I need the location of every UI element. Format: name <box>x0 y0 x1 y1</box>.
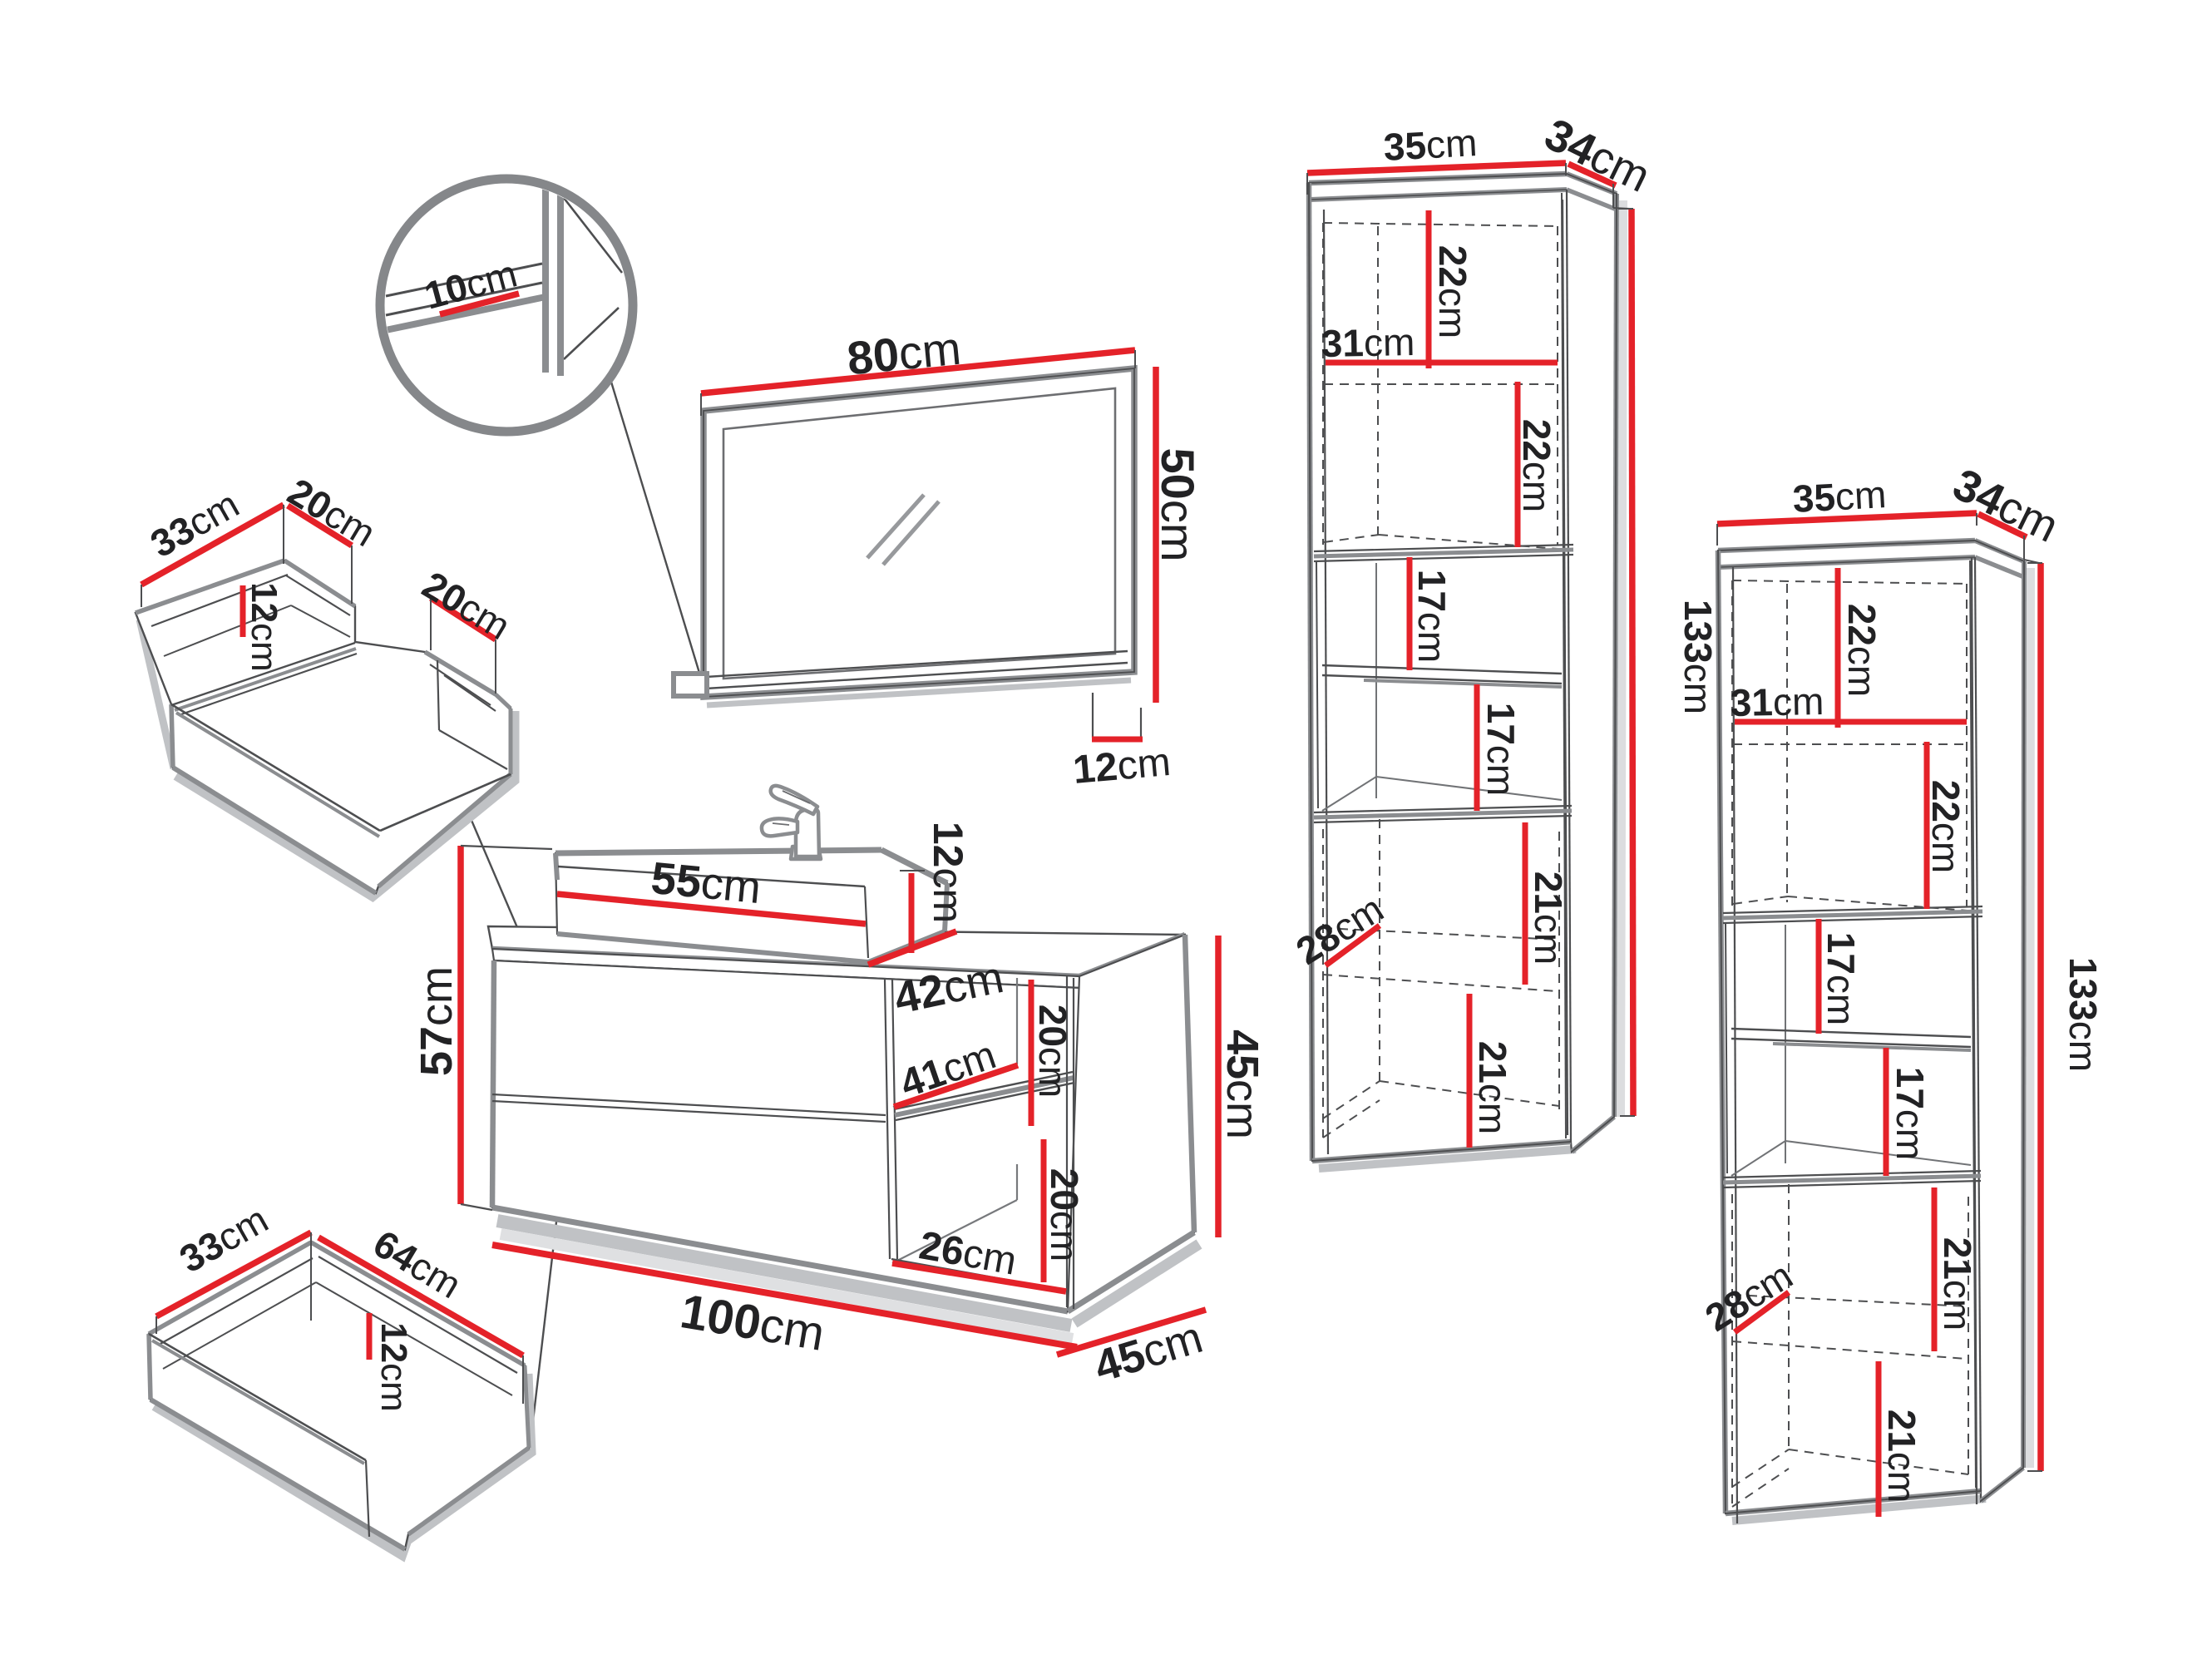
svg-text:17cm: 17cm <box>1819 932 1863 1026</box>
svg-text:21cm: 21cm <box>1527 871 1570 965</box>
svg-text:80cm: 80cm <box>845 321 963 384</box>
svg-text:20cm: 20cm <box>1031 1005 1074 1099</box>
svg-text:55cm: 55cm <box>649 853 763 913</box>
svg-text:22cm: 22cm <box>1431 245 1474 339</box>
svg-text:35cm: 35cm <box>1791 472 1887 521</box>
svg-text:17cm: 17cm <box>1479 703 1523 797</box>
svg-text:21cm: 21cm <box>1471 1041 1514 1135</box>
svg-text:17cm: 17cm <box>1410 570 1454 664</box>
svg-text:22cm: 22cm <box>1924 780 1968 874</box>
svg-text:21cm: 21cm <box>1880 1410 1923 1503</box>
svg-text:45cm: 45cm <box>1217 1029 1267 1139</box>
svg-text:12cm: 12cm <box>244 582 285 672</box>
svg-text:20cm: 20cm <box>1043 1168 1086 1262</box>
svg-text:133cm: 133cm <box>2061 957 2105 1072</box>
svg-text:22cm: 22cm <box>1515 419 1558 513</box>
svg-text:12cm: 12cm <box>925 822 971 923</box>
svg-text:133cm: 133cm <box>1676 600 1720 714</box>
svg-text:21cm: 21cm <box>1936 1237 1979 1331</box>
svg-text:57cm: 57cm <box>412 966 462 1076</box>
svg-text:12cm: 12cm <box>1071 739 1173 792</box>
svg-text:22cm: 22cm <box>1840 604 1884 698</box>
svg-text:35cm: 35cm <box>1382 121 1478 169</box>
svg-text:31cm: 31cm <box>1321 320 1415 365</box>
svg-text:50cm: 50cm <box>1153 448 1205 562</box>
svg-text:31cm: 31cm <box>1730 679 1824 724</box>
svg-text:17cm: 17cm <box>1889 1067 1932 1161</box>
svg-text:12cm: 12cm <box>374 1322 415 1412</box>
